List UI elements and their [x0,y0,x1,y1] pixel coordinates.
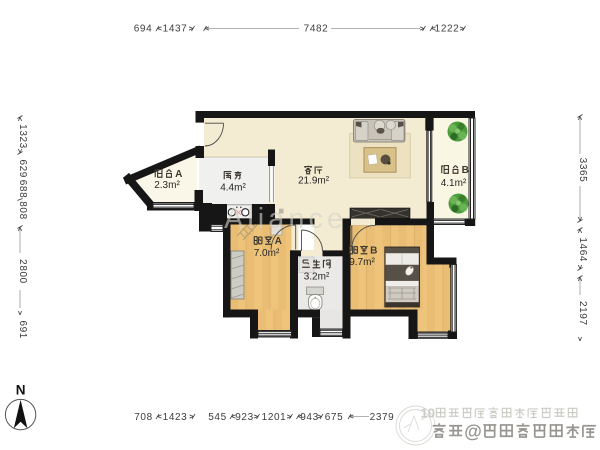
svg-text:1423: 1423 [163,412,188,423]
svg-text:7.0m²: 7.0m² [254,248,280,259]
svg-text:21.9m²: 21.9m² [298,176,330,187]
svg-text:3365: 3365 [577,158,588,183]
svg-text:1323: 1323 [17,124,28,149]
svg-text:694: 694 [134,24,153,35]
svg-text:1437: 1437 [163,24,188,35]
svg-text:3.2m²: 3.2m² [304,272,330,283]
svg-text:808: 808 [17,201,28,220]
svg-text:N: N [16,383,26,398]
svg-text:@: @ [464,422,482,442]
svg-text:708: 708 [134,412,153,423]
svg-text:A: A [275,236,283,247]
svg-text:1464: 1464 [577,237,588,262]
svg-text:10: 10 [421,406,435,421]
svg-text:2197: 2197 [577,301,588,326]
svg-text:2.3m²: 2.3m² [154,180,180,191]
svg-text:2800: 2800 [17,259,28,284]
svg-text:629: 629 [17,159,28,178]
svg-text:691: 691 [17,320,28,339]
svg-text:2379: 2379 [370,412,395,423]
svg-text:A: A [175,169,183,180]
svg-text:B: B [370,246,377,257]
svg-text:9.7m²: 9.7m² [349,257,375,268]
svg-text:675: 675 [325,412,344,423]
svg-text:7482: 7482 [304,24,329,35]
svg-text:688: 688 [17,180,28,199]
svg-text:1201: 1201 [262,412,287,423]
svg-text:4.1m²: 4.1m² [441,178,467,189]
svg-text:923: 923 [235,412,254,423]
svg-text:943: 943 [300,412,319,423]
svg-text:4.4m²: 4.4m² [220,183,246,194]
svg-text:1222: 1222 [435,24,460,35]
svg-text:Aliance: Aliance [224,203,347,235]
svg-text:545: 545 [208,412,227,423]
svg-text:B: B [462,165,469,176]
